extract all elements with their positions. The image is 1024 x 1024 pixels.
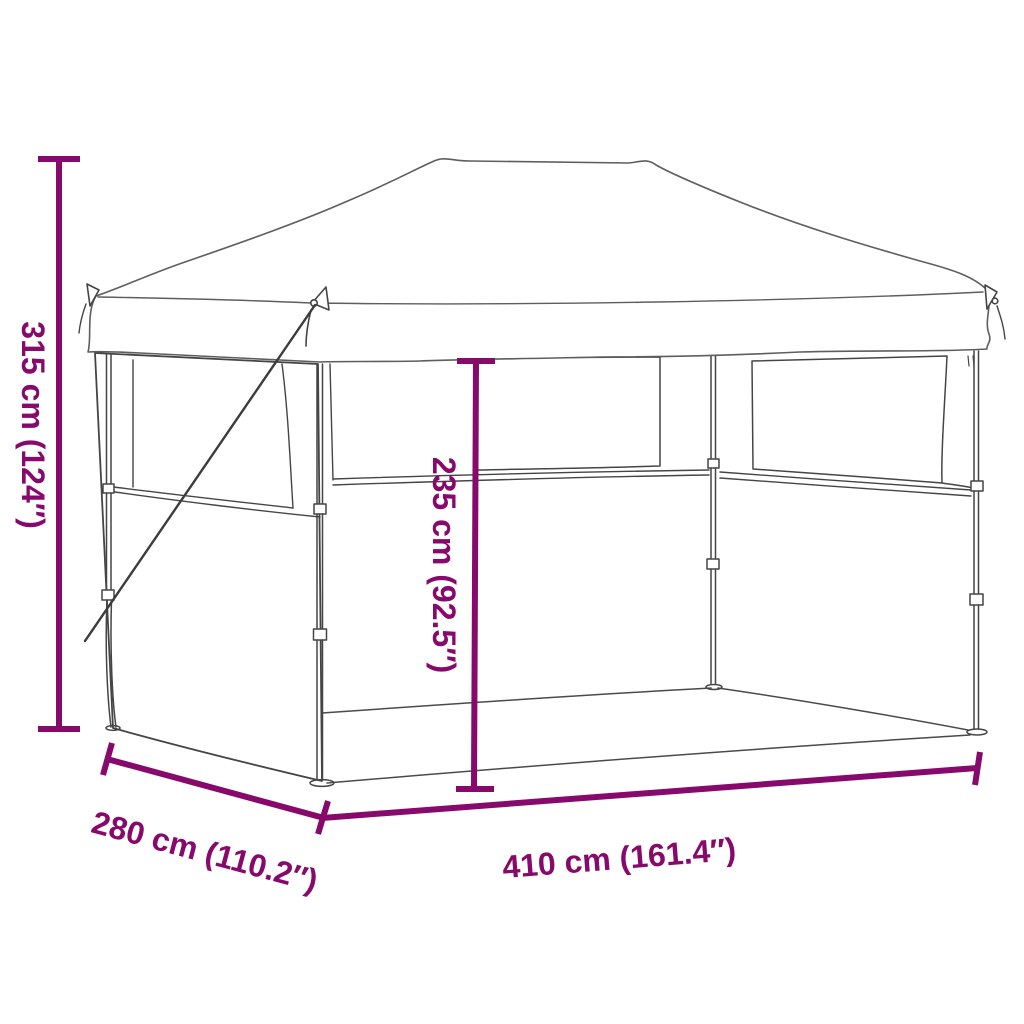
right-window-band [752,356,974,488]
pole-foot [706,685,722,690]
label-depth: 280 cm (110.2″) [88,804,322,899]
label-total-height: 315 cm (124″) [15,321,51,528]
back-window-band [475,357,660,470]
right-window-outline [752,356,947,483]
dim-cap-right [975,752,980,785]
pole-back-center [706,356,722,690]
rail-front-left [333,470,709,479]
dimension-diagram: 315 cm (124″) 235 cm (92.5″) 280 cm (110… [0,0,1024,1024]
canopy [88,159,990,362]
dimension-width [322,752,980,818]
dim-line [474,362,476,788]
right-wall-strap-1 [968,356,969,366]
floor-edge-right [718,688,968,730]
label-inner-height: 235 cm (92.5″) [426,457,462,673]
floor-edge-back [322,688,711,713]
canopy-silhouette [88,159,990,362]
left-sidewall-cloth [95,353,322,781]
back-window-outline [475,357,660,470]
tie-string [79,304,86,333]
label-width: 410 cm (161.4″) [501,831,737,885]
pole-front-right [967,351,987,735]
floor-edges [322,688,970,783]
right-window-foot-seam [942,483,973,488]
tie-string [997,306,1005,339]
tent-drawing [79,159,1005,787]
pole-foot [967,729,987,735]
left-sidewall [95,353,333,781]
left-sidewall-corner-edge [330,364,333,480]
